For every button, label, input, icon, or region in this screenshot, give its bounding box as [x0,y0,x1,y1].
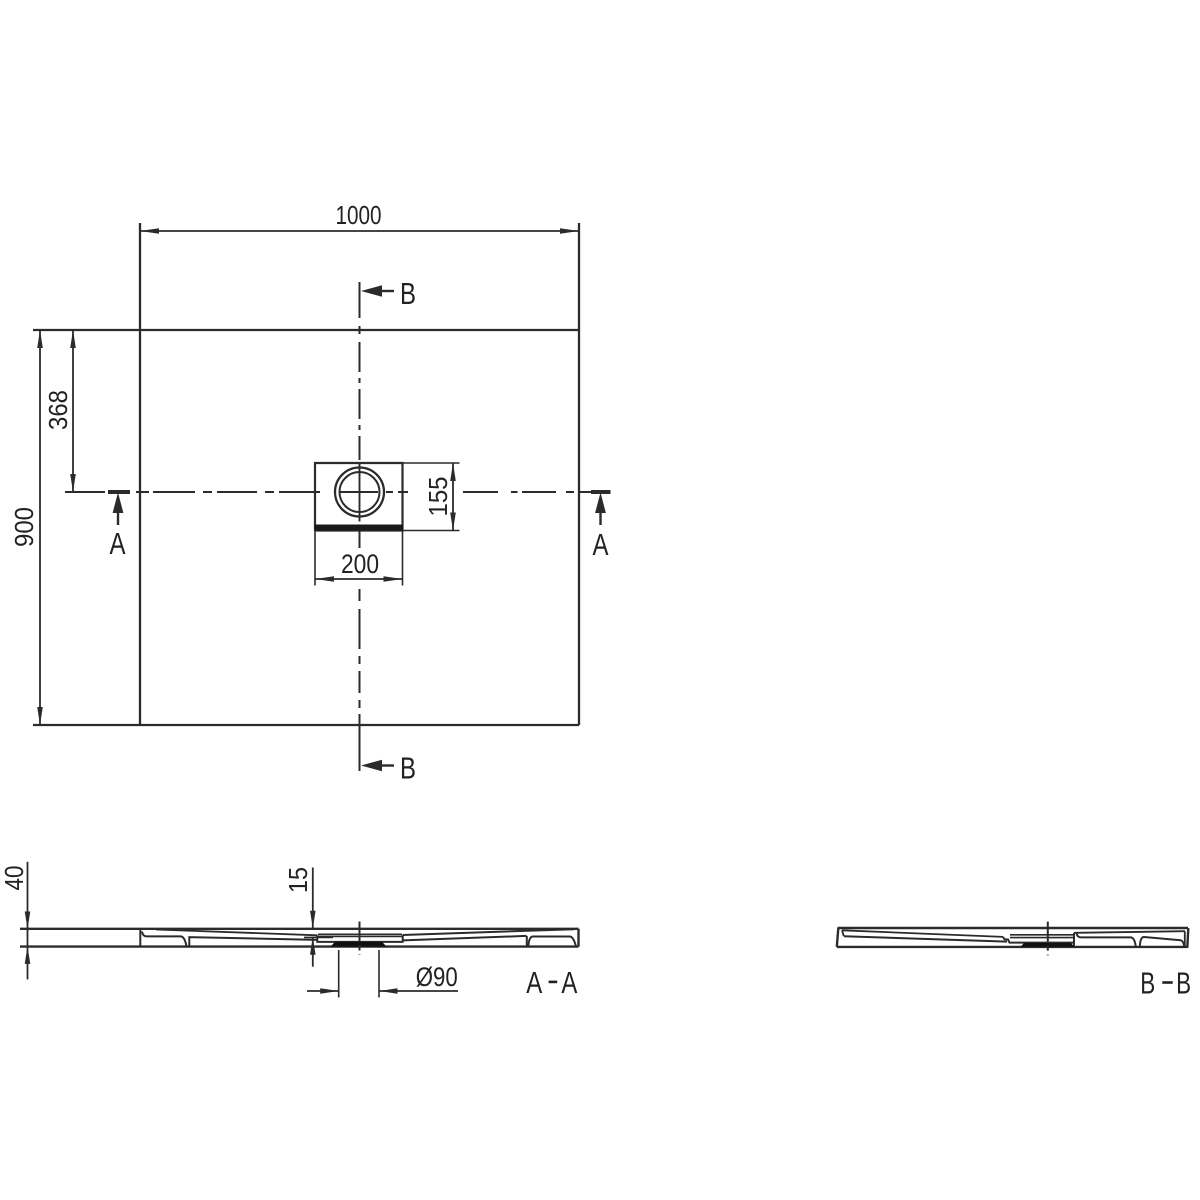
svg-text:200: 200 [341,549,379,579]
svg-text:A: A [526,965,542,1000]
svg-text:A: A [110,526,126,561]
svg-text:B: B [400,751,416,786]
svg-text:1000: 1000 [336,200,382,230]
svg-text:40: 40 [0,866,29,891]
svg-text:368: 368 [43,390,73,430]
svg-text:155: 155 [423,477,453,517]
svg-text:B: B [1140,966,1155,1001]
svg-text:900: 900 [9,507,39,547]
svg-text:A: A [593,527,609,562]
svg-text:Ø90: Ø90 [416,962,458,992]
svg-text:A: A [561,965,577,1000]
svg-text:B: B [1176,966,1191,1001]
svg-text:B: B [400,276,416,311]
svg-text:15: 15 [283,867,313,893]
